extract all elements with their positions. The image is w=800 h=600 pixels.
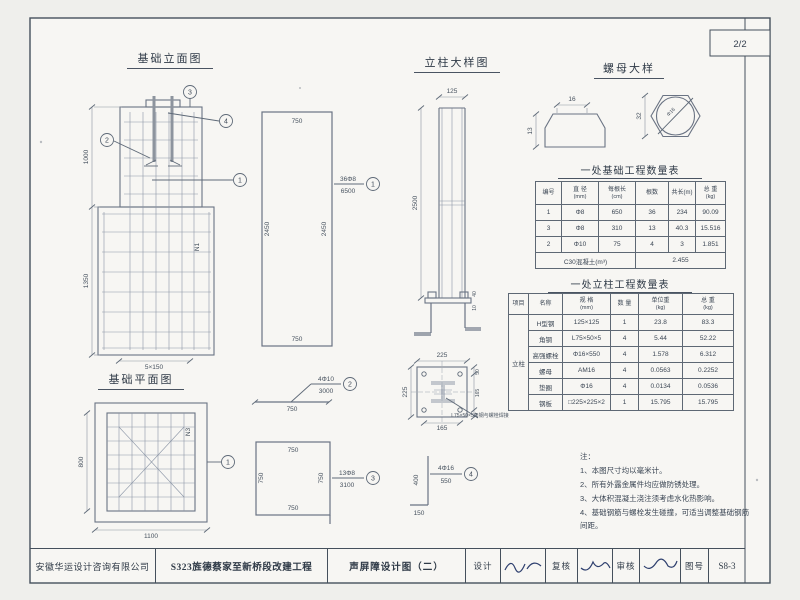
table-row: 角钢 L75×50×5 4 5.44 52.22 bbox=[509, 331, 734, 347]
note-item: 1、本图尺寸均以毫米计。 bbox=[580, 464, 750, 477]
col-header: 每根长(cm) bbox=[599, 182, 636, 205]
elevation-dim-lower: 1350 bbox=[83, 273, 90, 288]
col-header: 项目 bbox=[509, 294, 529, 315]
review-label: 审核 bbox=[612, 549, 639, 583]
plan-bar-mark: N3 bbox=[185, 427, 192, 436]
foundation-quantity-table: 编号 直 径(mm) 每根长(cm) 根数 共长(m) 总 重(kg) 1 Φ8… bbox=[535, 181, 726, 269]
cell: 75 bbox=[599, 237, 636, 253]
project-name: S323旌德蔡家至新桥段改建工程 bbox=[155, 549, 327, 583]
column-quantity-table: 项目 名称 规 格(mm) 数 量 单位重(kg) 总 重(kg) 立柱 H型钢… bbox=[508, 293, 734, 411]
cell: 0.0134 bbox=[639, 379, 683, 395]
foundation-table-title: 一处基础工程数量表 bbox=[558, 162, 702, 179]
page-number: 2/2 bbox=[733, 39, 746, 50]
cell: 垫圈 bbox=[529, 379, 563, 395]
cell: 83.3 bbox=[683, 315, 734, 331]
table-row: 2 Φ10 75 4 3 1.851 bbox=[536, 237, 726, 253]
col-header: 共长(m) bbox=[669, 182, 696, 205]
cell: 15.516 bbox=[696, 221, 726, 237]
table-footer-row: C30混凝土(m³) 2.455 bbox=[536, 253, 726, 269]
table-row: 垫圈 Φ16 4 0.0134 0.0536 bbox=[509, 379, 734, 395]
cell: 310 bbox=[599, 221, 636, 237]
cell: Φ8 bbox=[562, 205, 599, 221]
bar1-length: 6500 bbox=[341, 188, 356, 195]
cell: Φ16 bbox=[563, 379, 611, 395]
review-signature-scribble bbox=[640, 554, 680, 578]
cell: 650 bbox=[599, 205, 636, 221]
notes-block: 注： 1、本图尺寸均以毫米计。 2、所有外露金属件均应做防锈处理。 3、大体积混… bbox=[580, 450, 750, 533]
bar1-dim-top: 750 bbox=[292, 118, 303, 125]
bar2-length: 3000 bbox=[319, 388, 334, 395]
cell: H型钢 bbox=[529, 315, 563, 331]
cell: □225×225×2 bbox=[563, 395, 611, 411]
table-row: 立柱 H型钢 125×125 1 23.8 83.3 bbox=[509, 315, 734, 331]
cell: 螺母 bbox=[529, 363, 563, 379]
group-cell: 立柱 bbox=[509, 315, 529, 411]
bar4-dim-vertical: 400 bbox=[413, 474, 420, 485]
bar2-dim: 750 bbox=[287, 406, 298, 413]
cell: 4 bbox=[636, 237, 669, 253]
cell: 125×125 bbox=[563, 315, 611, 331]
cell: 1.851 bbox=[696, 237, 726, 253]
cell: 1 bbox=[611, 315, 639, 331]
bar1-dim-left: 2450 bbox=[264, 221, 271, 236]
concrete-label: C30混凝土(m³) bbox=[536, 253, 636, 269]
elevation-dim-width: 5×150 bbox=[145, 364, 164, 371]
cell: 4 bbox=[611, 363, 639, 379]
design-signature-scribble bbox=[501, 554, 545, 578]
cell: AM16 bbox=[563, 363, 611, 379]
nut-dim-height: 13 bbox=[527, 127, 534, 135]
drawing-no-value: S8-3 bbox=[708, 549, 745, 583]
nut-detail-title: 螺母大样 bbox=[594, 60, 664, 79]
drawing-no-label: 图号 bbox=[680, 549, 708, 583]
cell: 4 bbox=[611, 379, 639, 395]
col-header: 根数 bbox=[636, 182, 669, 205]
col-header: 总 重(kg) bbox=[683, 294, 734, 315]
bar2-callout: 2 bbox=[348, 382, 352, 389]
cell: 90.09 bbox=[696, 205, 726, 221]
cell: 4 bbox=[611, 347, 639, 363]
title-block: 安徽华运设计咨询有限公司 S323旌德蔡家至新桥段改建工程 声屏障设计图（二） … bbox=[30, 548, 745, 583]
drawing-sheet: 2/2 bbox=[0, 0, 800, 600]
bar3-mark: 13Φ8 bbox=[339, 470, 355, 477]
drawing-name: 声屏障设计图（二） bbox=[327, 549, 465, 583]
cell: 3 bbox=[669, 237, 696, 253]
cell: 角钢 bbox=[529, 331, 563, 347]
table-row: 高强螺栓 Φ16×550 4 1.578 6.312 bbox=[509, 347, 734, 363]
note-item: 3、大体积混凝土浇注须考虑水化热影响。 bbox=[580, 492, 750, 505]
bar1-dim-right: 2450 bbox=[321, 221, 328, 236]
cell: 40.3 bbox=[669, 221, 696, 237]
nut-dim-width: 16 bbox=[568, 96, 576, 103]
cell: 1 bbox=[611, 395, 639, 411]
cell: 3 bbox=[536, 221, 562, 237]
cell: 钢板 bbox=[529, 395, 563, 411]
bar3-dim-left: 750 bbox=[258, 472, 265, 483]
plan-title: 基础平面图 bbox=[98, 371, 184, 390]
bar4-mark: 4Φ16 bbox=[438, 465, 454, 472]
bar1-callout: 1 bbox=[371, 182, 375, 189]
bar3-dim-right: 750 bbox=[318, 472, 325, 483]
cell: 36 bbox=[636, 205, 669, 221]
bar3-length: 3100 bbox=[340, 482, 355, 489]
plate-dim-right: 165 bbox=[475, 389, 481, 398]
cell: Φ10 bbox=[562, 237, 599, 253]
callout-2: 2 bbox=[105, 138, 109, 145]
plate-angle-weld-label: L75×50×5角钢与螺栓焊接 bbox=[451, 412, 509, 419]
bar2-mark: 4Φ10 bbox=[318, 376, 334, 383]
column-detail-title: 立柱大样图 bbox=[414, 54, 500, 73]
table-row: 钢板 □225×225×2 1 15.795 15.795 bbox=[509, 395, 734, 411]
bar3-dim-bottom: 750 bbox=[288, 505, 299, 512]
cell: 6.312 bbox=[683, 347, 734, 363]
notes-title: 注： bbox=[580, 450, 750, 463]
plan-dim-left: 800 bbox=[78, 456, 85, 467]
cell: 1 bbox=[536, 205, 562, 221]
col-header: 编号 bbox=[536, 182, 562, 205]
elevation-title: 基础立面图 bbox=[127, 50, 213, 69]
cell: 52.22 bbox=[683, 331, 734, 347]
plan-callout: 1 bbox=[226, 460, 230, 467]
table-row: 3 Φ8 310 13 40.3 15.516 bbox=[536, 221, 726, 237]
bar1-mark: 36Φ8 bbox=[340, 176, 356, 183]
company-name: 安徽华运设计咨询有限公司 bbox=[30, 549, 155, 583]
cell: 0.0536 bbox=[683, 379, 734, 395]
cell: 5.44 bbox=[639, 331, 683, 347]
plan-dim-bottom: 1100 bbox=[144, 533, 158, 540]
table-header-row: 编号 直 径(mm) 每根长(cm) 根数 共长(m) 总 重(kg) bbox=[536, 182, 726, 205]
bar4-dim-horizontal: 150 bbox=[414, 510, 425, 517]
column-dim-width: 125 bbox=[447, 88, 458, 95]
cell: 4 bbox=[611, 331, 639, 347]
col-header: 总 重(kg) bbox=[696, 182, 726, 205]
column-table-title: 一处立柱工程数量表 bbox=[548, 276, 692, 293]
bar3-dim-top: 750 bbox=[288, 447, 299, 454]
plate-dim-top: 225 bbox=[437, 352, 448, 359]
cell: 15.795 bbox=[683, 395, 734, 411]
callout-4: 4 bbox=[224, 119, 228, 126]
table-row: 1 Φ8 650 36 234 90.09 bbox=[536, 205, 726, 221]
design-label: 设计 bbox=[465, 549, 500, 583]
col-header: 规 格(mm) bbox=[563, 294, 611, 315]
cell: 23.8 bbox=[639, 315, 683, 331]
cell: Φ8 bbox=[562, 221, 599, 237]
nut-dim-flats: 32 bbox=[636, 112, 643, 120]
cell: 1.578 bbox=[639, 347, 683, 363]
check-signature bbox=[577, 549, 612, 583]
col-header: 数 量 bbox=[611, 294, 639, 315]
col-header: 单位重(kg) bbox=[639, 294, 683, 315]
callout-1: 1 bbox=[238, 178, 242, 185]
cell: L75×50×5 bbox=[563, 331, 611, 347]
cell: 高强螺栓 bbox=[529, 347, 563, 363]
table-header-row: 项目 名称 规 格(mm) 数 量 单位重(kg) 总 重(kg) bbox=[509, 294, 734, 315]
plate-dim-offset: 50 bbox=[475, 369, 481, 375]
note-item: 4、基础钢筋与螺栓发生碰撞，可适当调整基础钢筋间距。 bbox=[580, 506, 750, 532]
bar3-callout: 3 bbox=[371, 476, 375, 483]
elevation-dim-upper: 1000 bbox=[83, 149, 90, 164]
check-label: 复核 bbox=[545, 549, 577, 583]
cell: 15.795 bbox=[639, 395, 683, 411]
plate-dim-bottom: 165 bbox=[437, 425, 448, 432]
cell: Φ16×550 bbox=[563, 347, 611, 363]
note-item: 2、所有外露金属件均应做防锈处理。 bbox=[580, 478, 750, 491]
bar1-dim-bottom: 750 bbox=[292, 336, 303, 343]
elevation-bar-mark: N1 bbox=[194, 242, 201, 251]
cell: 0.0563 bbox=[639, 363, 683, 379]
cell: 234 bbox=[669, 205, 696, 221]
column-dim-bolt-projection: 40 bbox=[472, 291, 478, 297]
cell: 13 bbox=[636, 221, 669, 237]
plate-dim-left: 225 bbox=[402, 386, 409, 397]
cell: 0.2252 bbox=[683, 363, 734, 379]
design-signature bbox=[500, 549, 545, 583]
bar4-callout: 4 bbox=[469, 472, 473, 479]
callout-3: 3 bbox=[188, 90, 192, 97]
review-signature bbox=[639, 549, 680, 583]
column-dim-plate-thickness: 10 bbox=[472, 305, 478, 311]
check-signature-scribble bbox=[578, 554, 612, 578]
bar4-length: 550 bbox=[441, 478, 452, 485]
cell: 2 bbox=[536, 237, 562, 253]
column-dim-height: 2500 bbox=[412, 195, 419, 210]
table-row: 螺母 AM16 4 0.0563 0.2252 bbox=[509, 363, 734, 379]
col-header: 直 径(mm) bbox=[562, 182, 599, 205]
concrete-value: 2.455 bbox=[636, 253, 726, 269]
col-header: 名称 bbox=[529, 294, 563, 315]
